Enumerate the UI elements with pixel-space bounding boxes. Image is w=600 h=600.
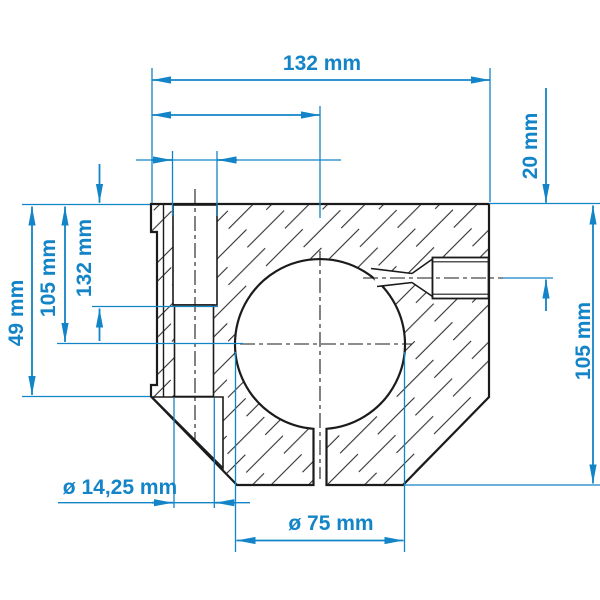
dim-top-width-label: 132 mm <box>283 52 361 75</box>
dim-hole-diameter: ø 14,25 mm <box>58 476 250 503</box>
dim-hole-diameter-label: ø 14,25 mm <box>63 476 177 499</box>
dim-right-height: 105 mm <box>572 206 595 484</box>
dim-left-flange-label: 49 mm <box>5 280 28 347</box>
dim-bore-diameter: ø 75 mm <box>237 512 404 541</box>
dim-left-counterbore-depth: 132 mm <box>73 164 100 341</box>
dim-left-counterbore-label: 132 mm <box>73 219 96 297</box>
dim-bore-diameter-label: ø 75 mm <box>288 512 373 535</box>
dim-right-height-label: 105 mm <box>572 302 595 380</box>
dim-left-axis-label: 105 mm <box>37 239 60 317</box>
dim-left-axis-depth: 105 mm <box>37 207 65 343</box>
dim-screw-offset-label: 20 mm <box>519 113 542 180</box>
technical-drawing: 132 mm 132 mm 105 mm 49 mm <box>0 0 600 600</box>
dim-left-flange-depth: 49 mm <box>5 207 32 396</box>
through-hole <box>175 305 214 397</box>
dim-top-width: 132 mm <box>152 52 490 80</box>
technical-drawing-page: 132 mm 132 mm 105 mm 49 mm <box>0 0 600 600</box>
part-cross-section <box>151 189 506 485</box>
chamfer-face <box>152 397 223 468</box>
